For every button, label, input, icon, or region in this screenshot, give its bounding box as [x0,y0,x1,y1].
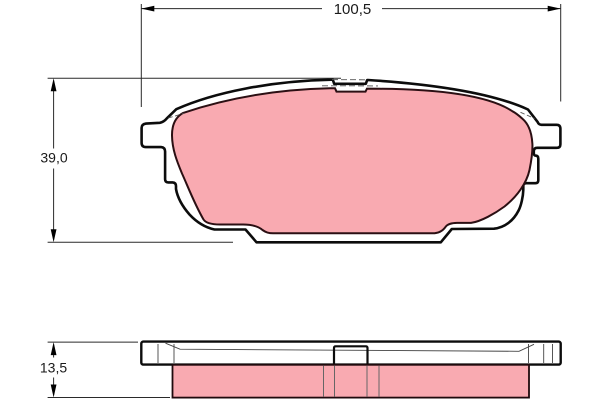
svg-text:39,0: 39,0 [40,149,67,165]
svg-text:100,5: 100,5 [334,1,372,18]
svg-text:13,5: 13,5 [40,359,67,375]
